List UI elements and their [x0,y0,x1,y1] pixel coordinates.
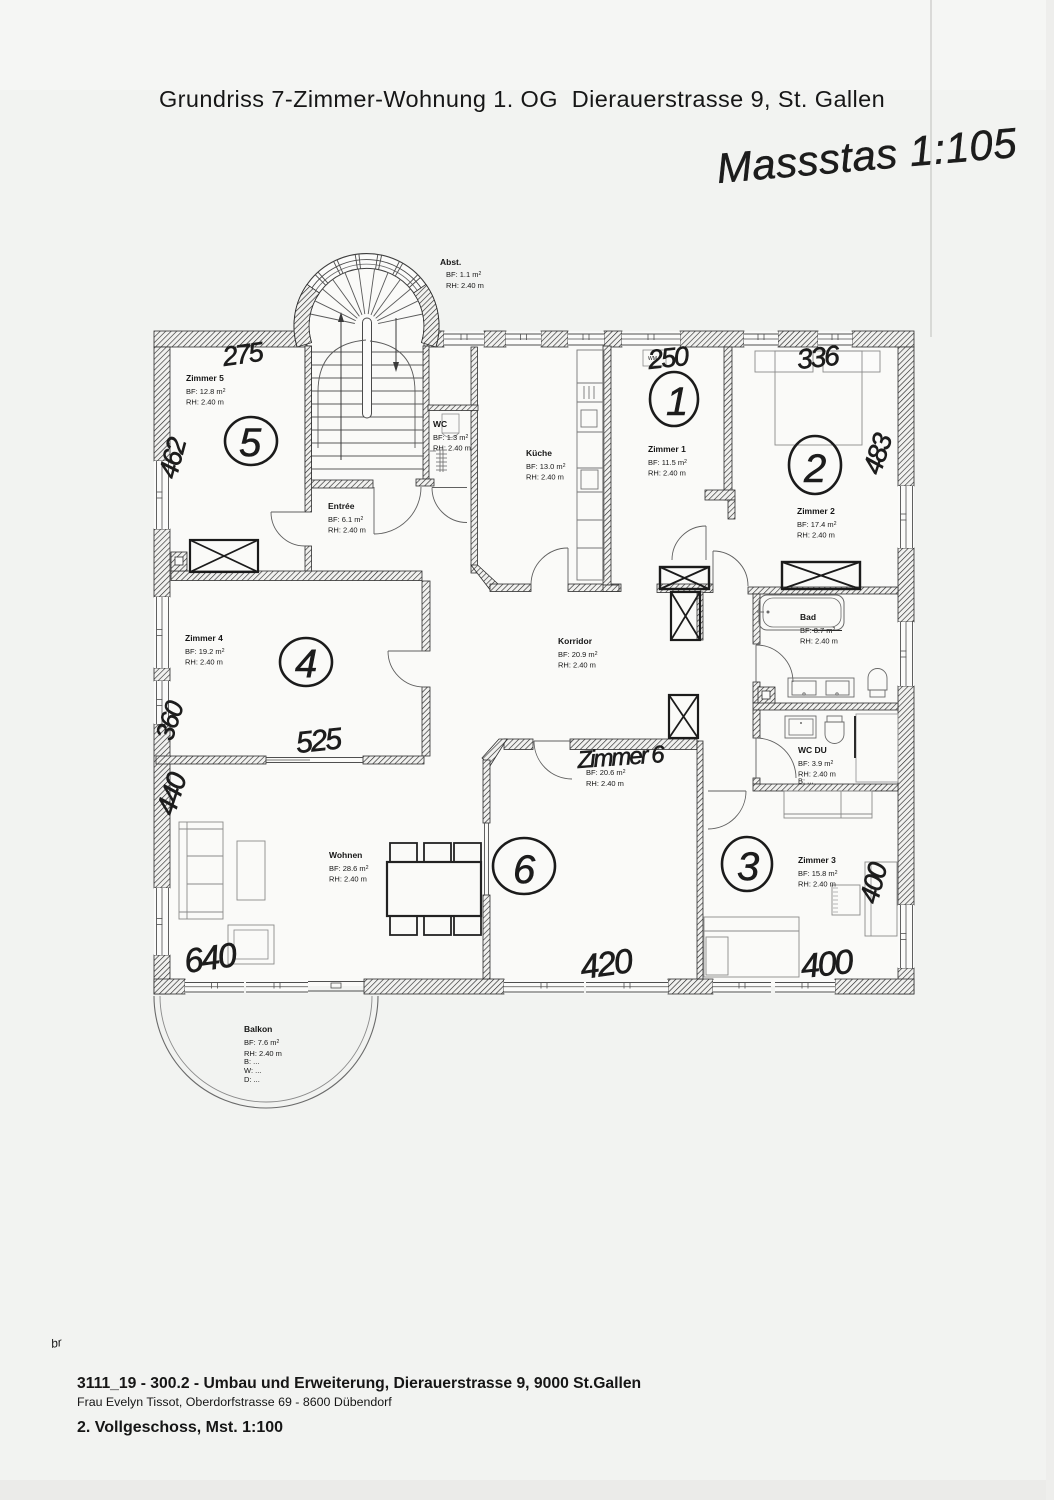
svg-text:1: 1 [666,380,686,424]
svg-text:RH: 2.40 m: RH: 2.40 m [185,658,223,667]
svg-text:RH: 2.40 m: RH: 2.40 m [800,637,838,646]
svg-text:5: 5 [239,421,262,465]
svg-text:2. Vollgeschoss, Mst. 1:100: 2. Vollgeschoss, Mst. 1:100 [77,1419,283,1436]
svg-text:6: 6 [513,848,536,892]
svg-text:3111_19 - 300.2 - Umbau und Er: 3111_19 - 300.2 - Umbau und Erweiterung,… [77,1375,641,1392]
svg-text:BF: 19.2 m2: BF: 19.2 m2 [185,647,225,656]
svg-text:BF: 28.6 m2: BF: 28.6 m2 [329,864,369,873]
svg-text:525: 525 [294,722,344,760]
svg-text:250: 250 [645,341,690,375]
svg-text:BF: 11.5 m2: BF: 11.5 m2 [648,458,687,467]
svg-text:BF: 20.9 m2: BF: 20.9 m2 [558,650,598,659]
svg-text:B: ...: B: ... [244,1057,259,1066]
svg-text:WC: WC [433,419,447,429]
svg-text:Zimmer 3: Zimmer 3 [798,855,836,865]
svg-text:Wohnen: Wohnen [329,850,362,860]
svg-text:RH: 2.40 m: RH: 2.40 m [186,398,224,407]
svg-text:Abst.: Abst. [440,257,461,267]
svg-text:RH: 2.40 m: RH: 2.40 m [446,281,484,290]
svg-text:275: 275 [220,336,267,372]
svg-text:400: 400 [799,943,856,986]
svg-text:420: 420 [578,942,636,987]
svg-text:RH: 2.40 m: RH: 2.40 m [586,779,624,788]
svg-text:Zimmer 4: Zimmer 4 [185,633,223,643]
svg-text:BF: 1.1 m2: BF: 1.1 m2 [446,270,482,279]
svg-text:RH: 2.40 m: RH: 2.40 m [798,880,836,889]
svg-text:Balkon: Balkon [244,1024,272,1034]
svg-text:Zimmer 5: Zimmer 5 [186,373,224,383]
svg-text:Bad: Bad [800,612,816,622]
svg-text:Küche: Küche [526,448,552,458]
svg-text:RH: 2.40 m: RH: 2.40 m [329,875,367,884]
svg-text:D: ...: D: ... [244,1075,260,1084]
svg-text:BF: 13.0 m2: BF: 13.0 m2 [526,462,566,471]
svg-text:RH: 2.40 m: RH: 2.40 m [648,469,686,478]
svg-text:Korridor: Korridor [558,636,593,646]
svg-text:Entrée: Entrée [328,501,355,511]
svg-text:W: ...: W: ... [244,1066,261,1075]
svg-text:BF: 12.8 m2: BF: 12.8 m2 [186,387,226,396]
svg-text:BF: 3.9 m2: BF: 3.9 m2 [798,759,834,768]
svg-text:RH: 2.40 m: RH: 2.40 m [433,444,471,453]
svg-text:WC DU: WC DU [798,745,827,755]
svg-text:BF: 17.4 m2: BF: 17.4 m2 [797,520,837,529]
svg-text:RH: 2.40 m: RH: 2.40 m [797,531,835,540]
svg-text:336: 336 [795,340,841,375]
svg-text:RH: 2.40 m: RH: 2.40 m [558,661,596,670]
svg-text:BF: 7.6 m2: BF: 7.6 m2 [244,1038,280,1047]
svg-text:BF: 15.8 m2: BF: 15.8 m2 [798,869,838,878]
svg-text:Zimmer 1: Zimmer 1 [648,444,686,454]
svg-text:BF: 6.1 m2: BF: 6.1 m2 [328,515,364,524]
svg-text:3: 3 [737,845,759,889]
svg-text:Zimmer 2: Zimmer 2 [797,506,835,516]
svg-text:Grundriss 7-Zimmer-Wohnung 1.: Grundriss 7-Zimmer-Wohnung 1. OG Dieraue… [159,86,885,112]
svg-text:640: 640 [182,936,240,981]
svg-text:B: ...: B: ... [798,777,813,786]
svg-text:RH: 2.40 m: RH: 2.40 m [328,526,366,535]
svg-text:BF: 20.6 m2: BF: 20.6 m2 [586,768,626,777]
svg-text:RH: 2.40 m: RH: 2.40 m [526,473,564,482]
svg-text:BF: 1.3 m2: BF: 1.3 m2 [433,433,469,442]
svg-text:4: 4 [295,642,316,686]
svg-text:2: 2 [803,447,826,491]
svg-text:Frau Evelyn Tissot, Oberdorfst: Frau Evelyn Tissot, Oberdorfstrasse 69 -… [77,1395,392,1409]
